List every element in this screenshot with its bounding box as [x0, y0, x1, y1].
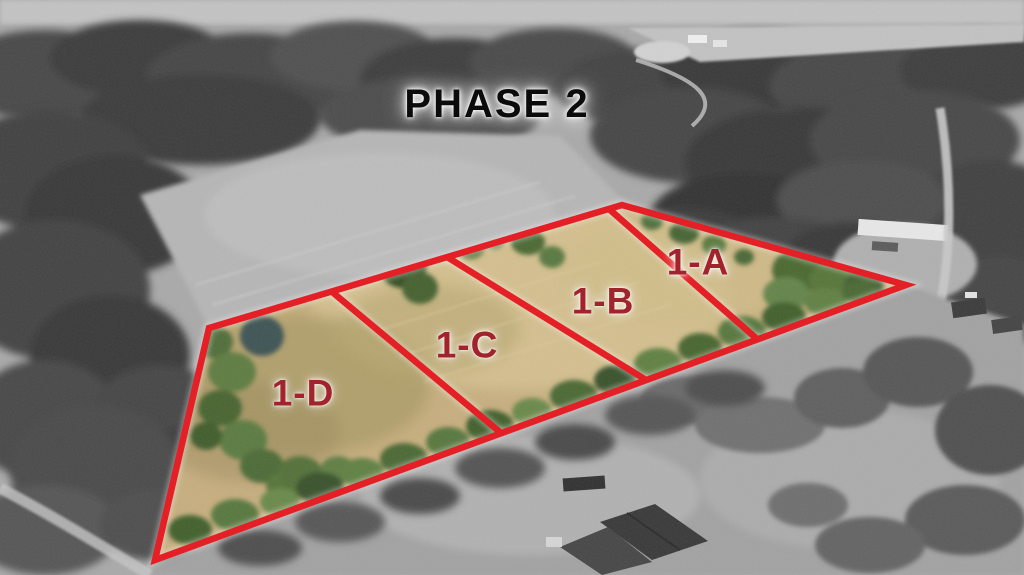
aerial-lot-map: PHASE 2 1-A 1-B 1-C 1-D [0, 0, 1024, 575]
phase-label: PHASE 2 [404, 84, 589, 124]
lot-label-1c: 1-C [436, 327, 499, 364]
lot-label-1b: 1-B [572, 283, 635, 320]
lot-label-1a: 1-A [667, 244, 730, 281]
lot-label-1d: 1-D [272, 375, 335, 412]
